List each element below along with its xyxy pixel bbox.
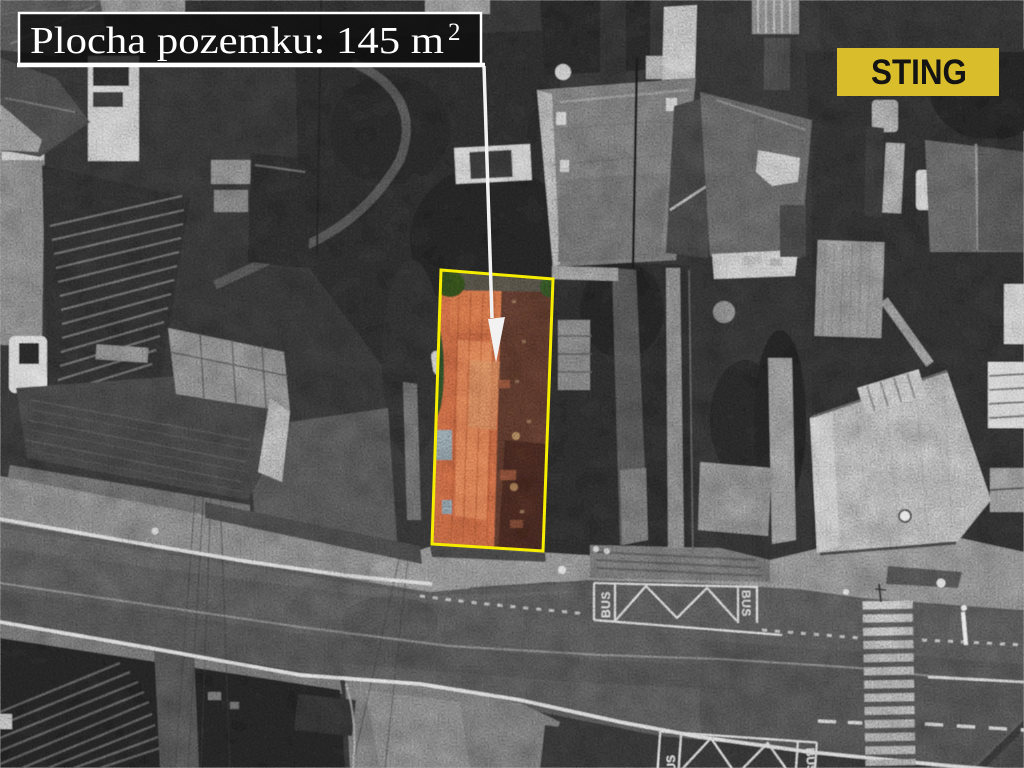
svg-text:BUS: BUS [599, 591, 613, 618]
svg-text:BUS: BUS [664, 755, 679, 768]
svg-text:STING: STING [871, 53, 967, 92]
svg-text:BUS: BUS [739, 590, 753, 617]
svg-text:2: 2 [448, 19, 461, 46]
svg-text:Plocha pozemku: 145 m: Plocha pozemku: 145 m [30, 20, 444, 62]
svg-text:BUS: BUS [803, 747, 818, 768]
